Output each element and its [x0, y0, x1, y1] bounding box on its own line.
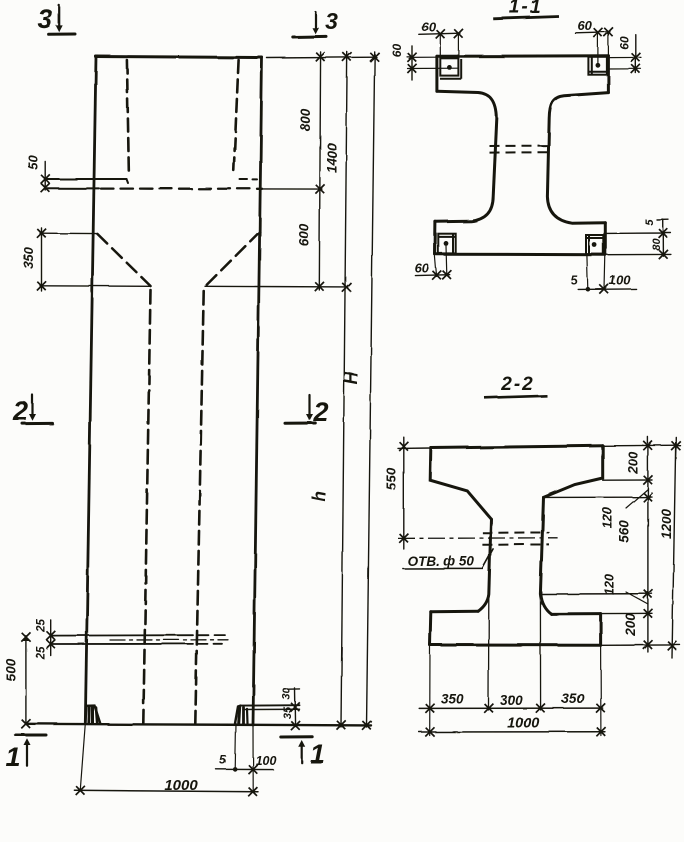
svg-text:50: 50 [26, 155, 41, 170]
svg-text:35: 35 [282, 706, 294, 719]
svg-text:350: 350 [441, 692, 464, 707]
svg-text:550: 550 [384, 467, 399, 490]
svg-text:1: 1 [310, 739, 325, 769]
svg-text:350: 350 [21, 246, 36, 268]
svg-text:60: 60 [577, 18, 592, 33]
svg-text:2: 2 [312, 397, 328, 427]
svg-text:2-2: 2-2 [500, 374, 534, 395]
svg-text:30: 30 [281, 687, 293, 700]
svg-text:3: 3 [325, 8, 338, 34]
svg-text:100: 100 [256, 754, 277, 768]
svg-text:80: 80 [651, 238, 663, 251]
svg-text:200: 200 [626, 451, 641, 475]
svg-text:ОТВ. ф 50: ОТВ. ф 50 [407, 554, 474, 569]
svg-text:60: 60 [421, 19, 436, 34]
svg-text:120: 120 [600, 508, 614, 529]
svg-text:100: 100 [609, 273, 631, 288]
svg-text:3: 3 [37, 4, 52, 34]
svg-text:1000: 1000 [164, 777, 198, 794]
svg-text:5: 5 [571, 274, 578, 288]
svg-text:120: 120 [603, 574, 617, 595]
svg-text:H: H [342, 371, 362, 385]
svg-text:560: 560 [617, 520, 632, 543]
svg-text:5: 5 [219, 753, 226, 767]
svg-text:1200: 1200 [659, 508, 674, 539]
svg-text:h: h [309, 491, 329, 502]
svg-text:500: 500 [4, 658, 19, 681]
svg-text:350: 350 [561, 691, 584, 706]
svg-text:60: 60 [415, 261, 430, 276]
svg-text:300: 300 [500, 693, 523, 708]
svg-text:5: 5 [644, 219, 656, 226]
svg-text:1-1: 1-1 [509, 0, 542, 18]
svg-text:600: 600 [297, 223, 312, 246]
svg-text:800: 800 [298, 108, 313, 131]
svg-text:60: 60 [618, 36, 632, 50]
svg-text:2: 2 [12, 396, 28, 426]
svg-text:200: 200 [623, 613, 638, 637]
svg-text:60: 60 [390, 44, 404, 58]
svg-text:25: 25 [36, 619, 48, 633]
svg-text:1400: 1400 [325, 142, 340, 173]
svg-text:1000: 1000 [507, 715, 539, 731]
svg-text:1: 1 [5, 742, 20, 772]
svg-text:25: 25 [35, 646, 47, 660]
